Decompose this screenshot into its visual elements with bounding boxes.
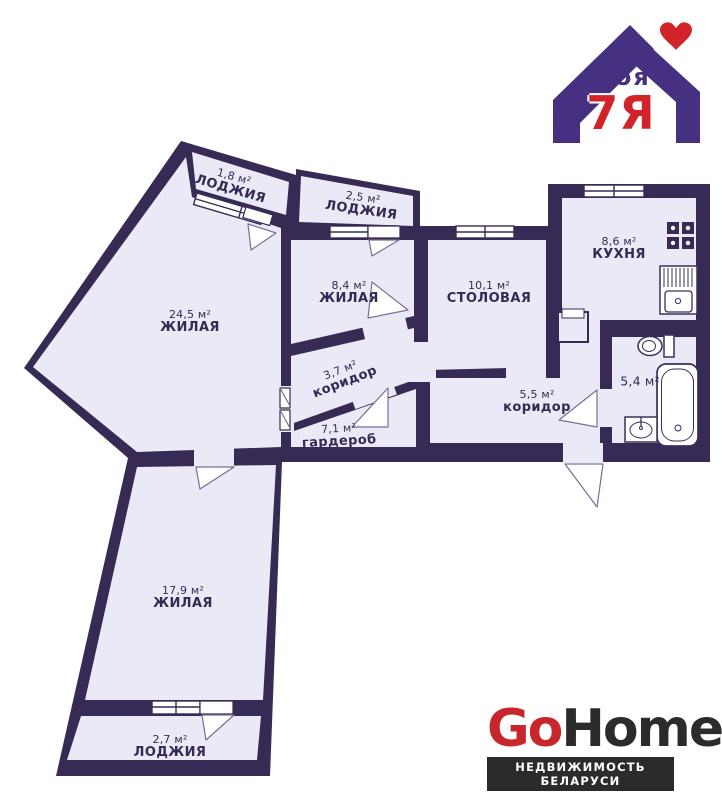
toilet-icon: [638, 335, 674, 357]
window-icon-living-bottom: [152, 701, 200, 714]
room-loggia-bottom-floor: [67, 716, 261, 760]
heart-icon: [660, 22, 692, 50]
kitchen-sink-icon: [660, 266, 697, 314]
gohome-home: Home: [561, 699, 722, 759]
washbasin-icon: [625, 417, 657, 442]
gohome-tagline: НЕДВИЖИМОСТЬ БЕЛАРУСИ: [487, 757, 674, 791]
window-icon-dining: [456, 226, 514, 238]
gohome-logo: GoHome НЕДВИЖИМОСТЬ БЕЛАРУСИ: [487, 703, 715, 791]
bathtub-icon: [657, 364, 698, 446]
room-living-bottom-floor: [85, 465, 276, 700]
logo-7ya-text: 7Я: [586, 86, 655, 140]
gohome-go: Go: [487, 699, 561, 759]
window-icon-kitchen: [584, 185, 644, 197]
entrance-door-icon: [565, 464, 603, 507]
room-dining-floor: [428, 240, 546, 370]
gohome-wordmark: GoHome: [487, 703, 715, 755]
vent-shaft: [558, 309, 588, 342]
floor-plan-page: 1,8 м² ЛОДЖИЯ 2,5 м² ЛОДЖИЯ 24,5 м² ЖИЛА…: [0, 0, 722, 800]
